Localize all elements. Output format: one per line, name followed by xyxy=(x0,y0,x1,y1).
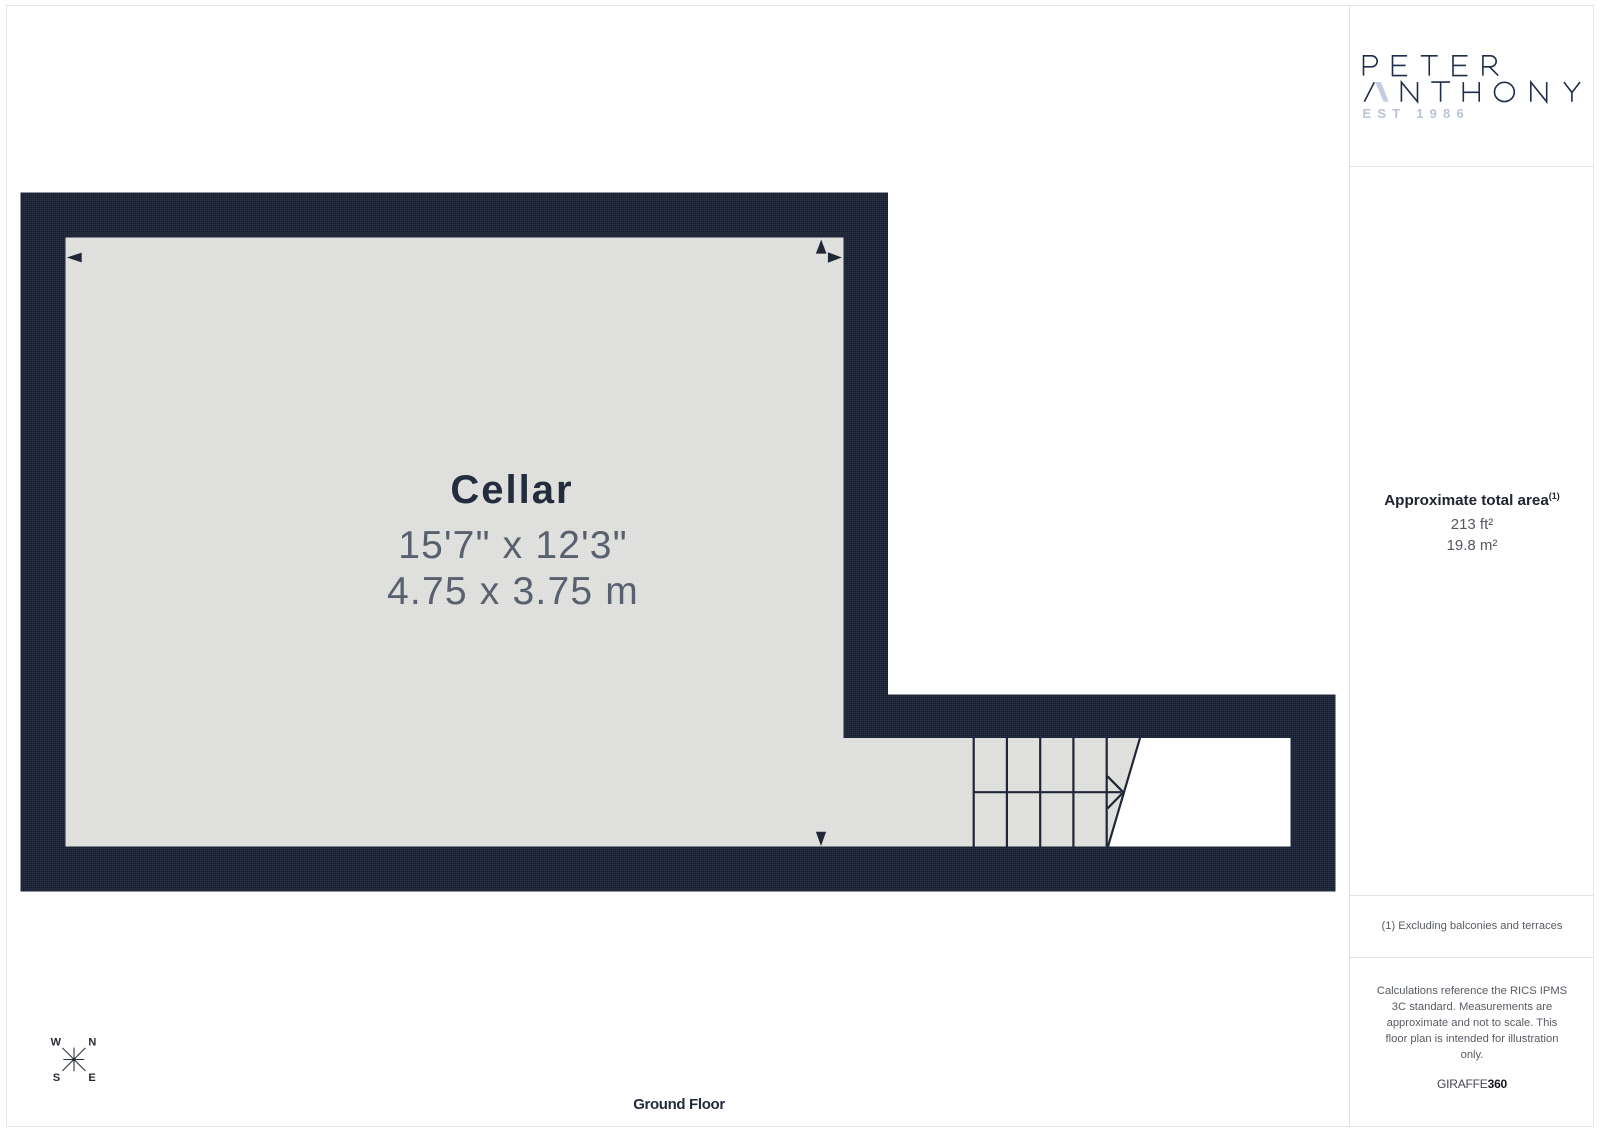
svg-text:S: S xyxy=(53,1072,60,1084)
svg-text:E: E xyxy=(88,1072,95,1084)
svg-text:N: N xyxy=(88,1036,96,1048)
svg-text:W: W xyxy=(51,1036,62,1048)
